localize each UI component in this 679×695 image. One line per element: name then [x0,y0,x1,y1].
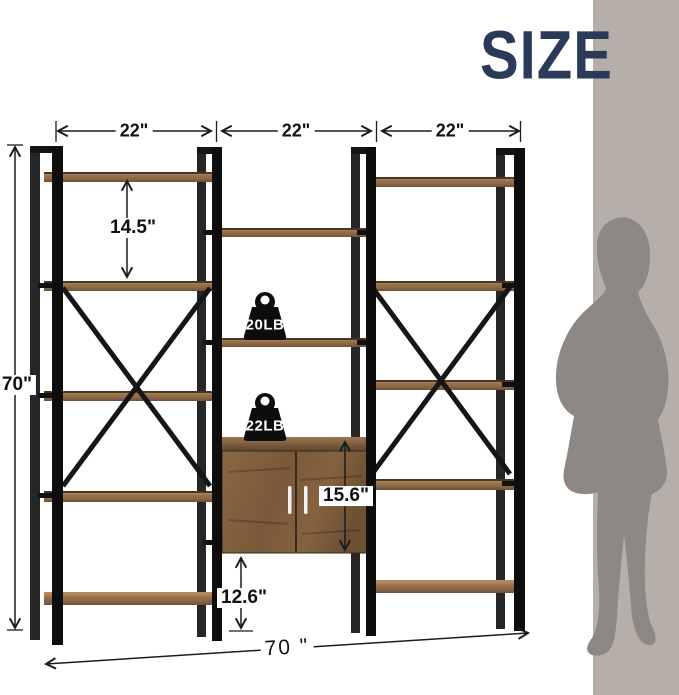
cabinet-top-slab [219,437,371,451]
dim-label-bay1-width: 22" [116,122,153,141]
cabinet-handle-right [304,486,308,514]
weight-label-20lb: 20LB [246,318,285,333]
dim-label-overall-width: 70 " [260,635,314,660]
dim-label-bay2-width: 22" [278,122,315,141]
dim-label-bottom-clearance: 12.6" [217,588,271,608]
product-size-diagram: SIZE 22" 22" 22" 70" 14.5" 15.6" 12.6" 7… [0,0,679,695]
dim-label-bay3-width: 22" [432,122,469,141]
page-title: SIZE [480,22,613,90]
dim-label-shelf-spacing: 14.5" [106,218,160,238]
x-brace-left [63,288,210,486]
middle-bay-shelves [214,228,368,347]
dim-label-overall-height: 70" [0,375,36,395]
diagram-canvas [0,0,679,695]
scale-reference [556,0,679,695]
frame-top-bars [30,146,525,155]
cabinet-handle-left [288,486,292,514]
bookshelf [30,146,525,645]
weight-label-22lb: 22LB [246,419,285,434]
dim-label-cabinet-height: 15.6" [319,486,373,506]
